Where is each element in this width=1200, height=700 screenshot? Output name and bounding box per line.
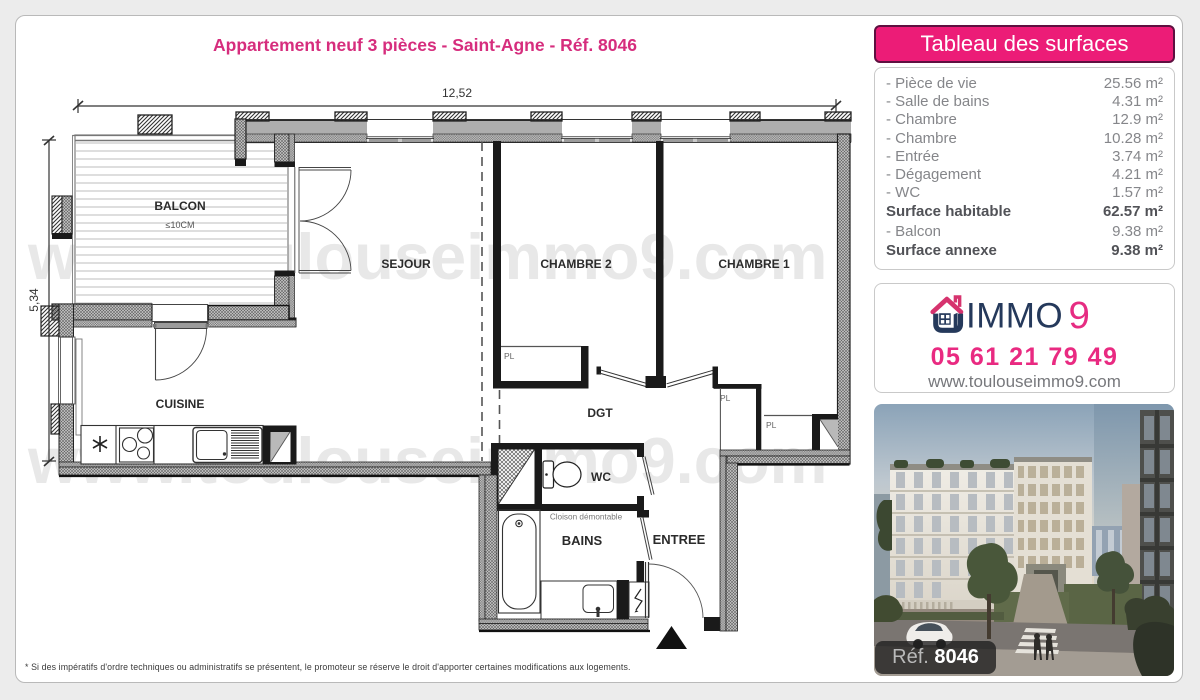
svg-text:5,34: 5,34 [27,288,41,312]
svg-text:BAINS: BAINS [562,533,603,548]
svg-text:CHAMBRE 1: CHAMBRE 1 [718,257,790,271]
svg-text:12,52: 12,52 [442,86,472,100]
svg-text:9: 9 [1068,294,1089,335]
svg-text:Cloison démontable: Cloison démontable [550,513,623,522]
svg-text:ENTREE: ENTREE [653,532,706,547]
svg-text:PL: PL [720,393,731,403]
svg-text:IMMO: IMMO [966,296,1063,335]
svg-text:SEJOUR: SEJOUR [381,257,431,271]
svg-text:CHAMBRE 2: CHAMBRE 2 [540,257,612,271]
svg-text:DGT: DGT [587,406,613,420]
svg-text:PL: PL [504,351,515,361]
svg-text:WC: WC [591,470,611,484]
svg-text:CUISINE: CUISINE [156,397,205,411]
svg-text:≤10CM: ≤10CM [166,220,195,230]
svg-text:BALCON: BALCON [154,199,205,213]
svg-text:PL: PL [766,420,777,430]
